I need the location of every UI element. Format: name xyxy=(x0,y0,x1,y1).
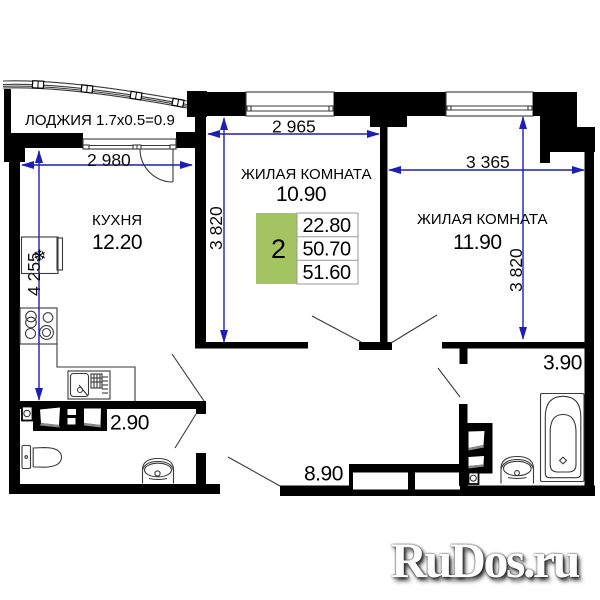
svg-text:3 365: 3 365 xyxy=(466,152,510,172)
svg-text:2.90: 2.90 xyxy=(110,412,149,435)
svg-text:3.90: 3.90 xyxy=(543,352,582,375)
svg-text:11.90: 11.90 xyxy=(453,231,502,254)
svg-text:ЛОДЖИЯ 1.7x0.5=0.9: ЛОДЖИЯ 1.7x0.5=0.9 xyxy=(25,112,175,129)
svg-text:3 820: 3 820 xyxy=(506,248,526,292)
svg-text:51.60: 51.60 xyxy=(303,262,352,284)
svg-text:10.90: 10.90 xyxy=(276,183,326,206)
svg-text:КУХНЯ: КУХНЯ xyxy=(92,212,142,229)
svg-text:ЖИЛАЯ КОМНАТА: ЖИЛАЯ КОМНАТА xyxy=(417,211,548,228)
svg-text:8.90: 8.90 xyxy=(304,463,343,486)
svg-text:2 965: 2 965 xyxy=(272,117,316,137)
svg-text:50.70: 50.70 xyxy=(303,239,352,261)
svg-text:ЖИЛАЯ КОМНАТА: ЖИЛАЯ КОМНАТА xyxy=(241,166,372,183)
svg-text:22.80: 22.80 xyxy=(303,215,352,237)
svg-text:3 820: 3 820 xyxy=(206,206,226,250)
svg-text:2 980: 2 980 xyxy=(87,150,131,170)
svg-text:❄: ❄ xyxy=(33,248,46,265)
svg-text:12.20: 12.20 xyxy=(92,231,142,254)
svg-text:2: 2 xyxy=(271,234,286,264)
